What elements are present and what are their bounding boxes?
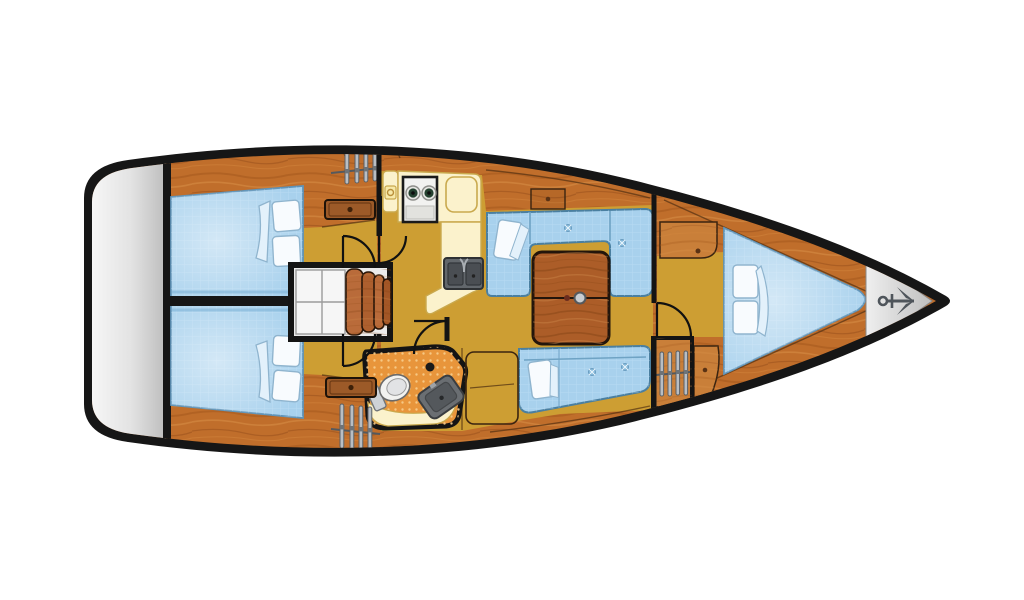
yacht-floorplan-canvas	[0, 0, 1024, 600]
forward-hanging-locker	[653, 338, 692, 408]
transom-platform	[88, 160, 166, 442]
drawer-unit-starboard	[326, 378, 376, 397]
floorplan-svg	[0, 0, 1024, 600]
forward-shelf-top	[660, 222, 717, 258]
stove-burners-icon	[403, 177, 437, 222]
table-hinge-knob	[575, 293, 586, 304]
drawer-unit-port	[325, 200, 375, 219]
saloon-table	[533, 252, 609, 344]
v-berth-pillows	[733, 265, 768, 336]
head-bathroom	[365, 347, 466, 428]
companionway-steps	[291, 265, 391, 339]
salon-shelf-locker	[531, 189, 565, 209]
aft-cabins-dividing-wall	[166, 296, 296, 306]
double-sink-icon	[444, 258, 483, 289]
head-drain	[426, 363, 435, 372]
